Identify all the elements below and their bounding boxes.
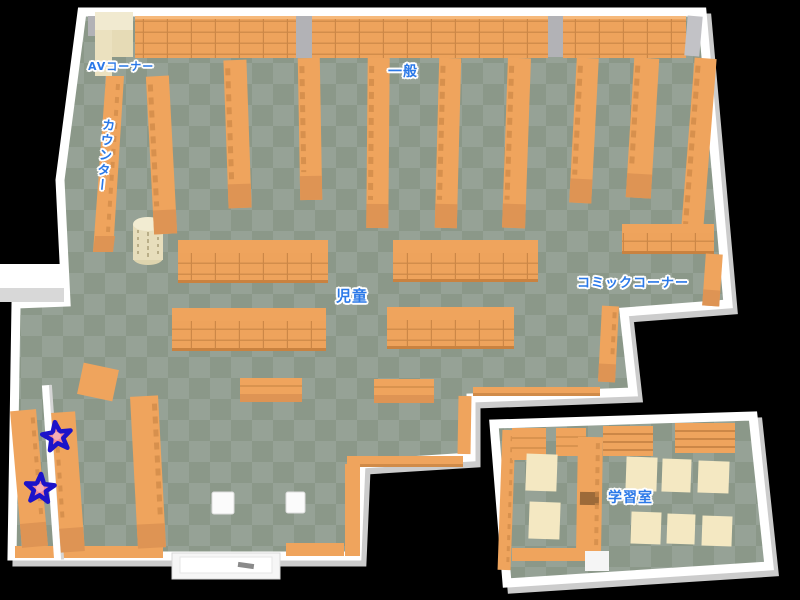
study-divider-shelf	[576, 437, 603, 553]
bookshelf	[435, 58, 461, 229]
stool	[286, 492, 305, 513]
label-study-room: 学習室	[608, 487, 653, 507]
study-door	[585, 551, 609, 571]
label-comic-corner: コミックコーナー	[577, 272, 689, 291]
top-wall-shelves	[88, 15, 703, 58]
pillar	[548, 16, 563, 57]
study-wall-shelf	[512, 548, 586, 561]
label-av-corner: AVコーナー	[88, 58, 154, 74]
low-shelf	[172, 308, 326, 351]
bookshelf	[366, 58, 389, 228]
low-shelf	[387, 307, 514, 349]
bench	[374, 379, 434, 403]
pillar	[296, 16, 312, 58]
low-shelf	[393, 240, 538, 282]
floor-map-canvas	[0, 0, 800, 600]
label-general: 一般	[388, 61, 418, 81]
floor-map: AVコーナー 一般 カウンター 児童 コミックコーナー 学習室	[0, 0, 800, 600]
entrance-door	[172, 553, 280, 579]
bench	[240, 378, 302, 402]
stool	[212, 492, 234, 514]
bookshelf	[298, 58, 322, 200]
label-children: 児童	[336, 285, 368, 306]
comic-corner-shelf	[622, 224, 714, 254]
low-shelf	[178, 240, 328, 283]
comic-corner-shelf	[702, 253, 723, 306]
left-wall-bump	[0, 264, 64, 302]
